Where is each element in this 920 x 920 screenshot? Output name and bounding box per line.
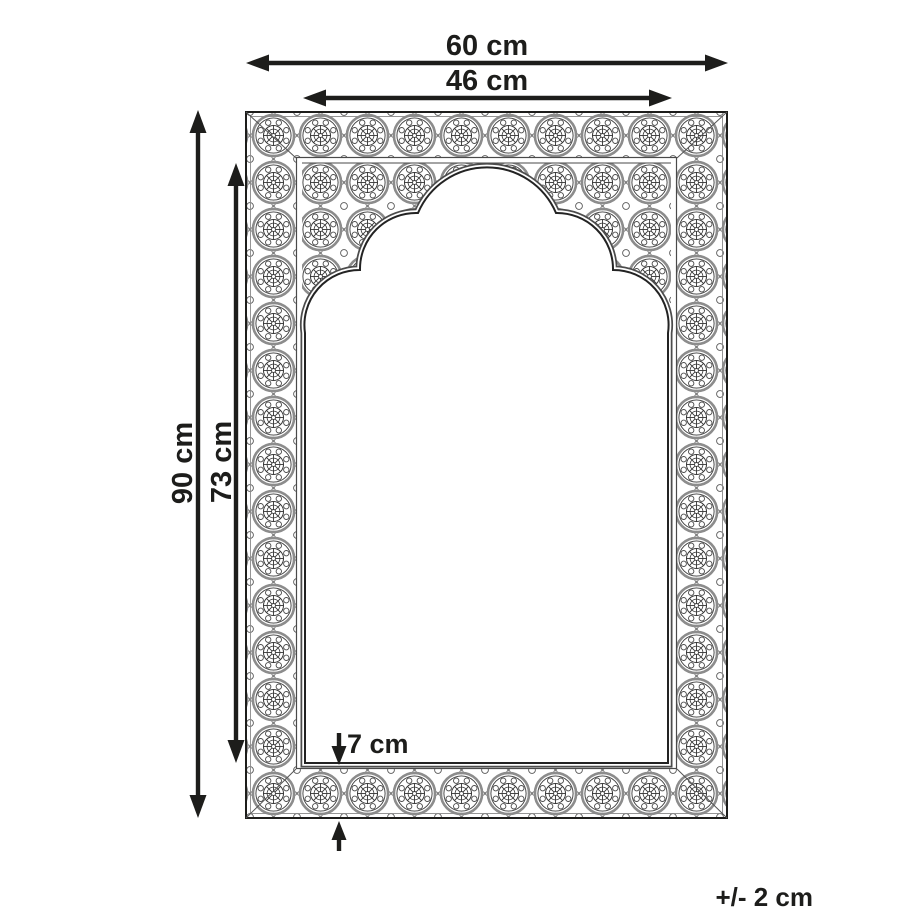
inner-width-arrowhead-left [303,90,326,107]
inner-width-dimension: 46 cm [303,65,672,107]
frame-depth-arrowhead-up [332,821,347,840]
outer-height-arrowhead-bottom [190,795,207,818]
outer-height-label: 90 cm [167,422,199,504]
inner-height-arrowhead-bottom [228,740,245,763]
tolerance-note: +/- 2 cm [715,882,813,912]
mirror-dimension-drawing: 60 cm 46 cm 90 cm 73 cm 7 cm +/- 2 cm [0,0,920,920]
outer-height-arrowhead-top [190,110,207,133]
mirror-glass [304,167,668,763]
inner-height-label: 73 cm [206,421,238,503]
dimension-diagram: 60 cm 46 cm 90 cm 73 cm 7 cm +/- 2 cm [0,0,920,920]
outer-width-arrowhead-right [705,55,728,72]
inner-width-arrowhead-right [649,90,672,107]
outer-height-dimension: 90 cm [167,110,207,818]
inner-height-arrowhead-top [228,163,245,186]
outer-width-label: 60 cm [446,30,528,62]
inner-height-dimension: 73 cm [206,163,245,763]
frame-depth-label: 7 cm [347,729,409,759]
inner-width-label: 46 cm [446,65,528,97]
outer-width-arrowhead-left [246,55,269,72]
